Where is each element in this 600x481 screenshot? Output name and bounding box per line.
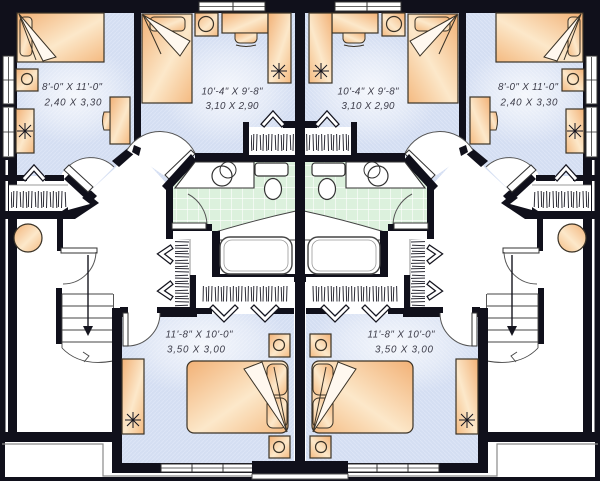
svg-text:11'-8" X 10'-0": 11'-8" X 10'-0" (368, 330, 436, 341)
svg-text:8'-0" X 11'-0": 8'-0" X 11'-0" (498, 82, 559, 93)
svg-text:8'-0" X 11'-0": 8'-0" X 11'-0" (42, 82, 103, 93)
svg-text:10'-4" X 9'-8": 10'-4" X 9'-8" (202, 87, 264, 98)
svg-text:3,10 X 2,90: 3,10 X 2,90 (342, 101, 396, 112)
svg-text:3,50 X 3,00: 3,50 X 3,00 (167, 345, 226, 356)
svg-text:11'-8" X 10'-0": 11'-8" X 10'-0" (166, 330, 234, 341)
svg-text:3,50 X 3,00: 3,50 X 3,00 (375, 345, 434, 356)
svg-text:10'-4" X 9'-8": 10'-4" X 9'-8" (338, 87, 400, 98)
svg-text:2,40 X 3,30: 2,40 X 3,30 (500, 98, 559, 109)
svg-text:3,10 X 2,90: 3,10 X 2,90 (206, 101, 260, 112)
svg-text:2,40 X 3,30: 2,40 X 3,30 (44, 98, 103, 109)
